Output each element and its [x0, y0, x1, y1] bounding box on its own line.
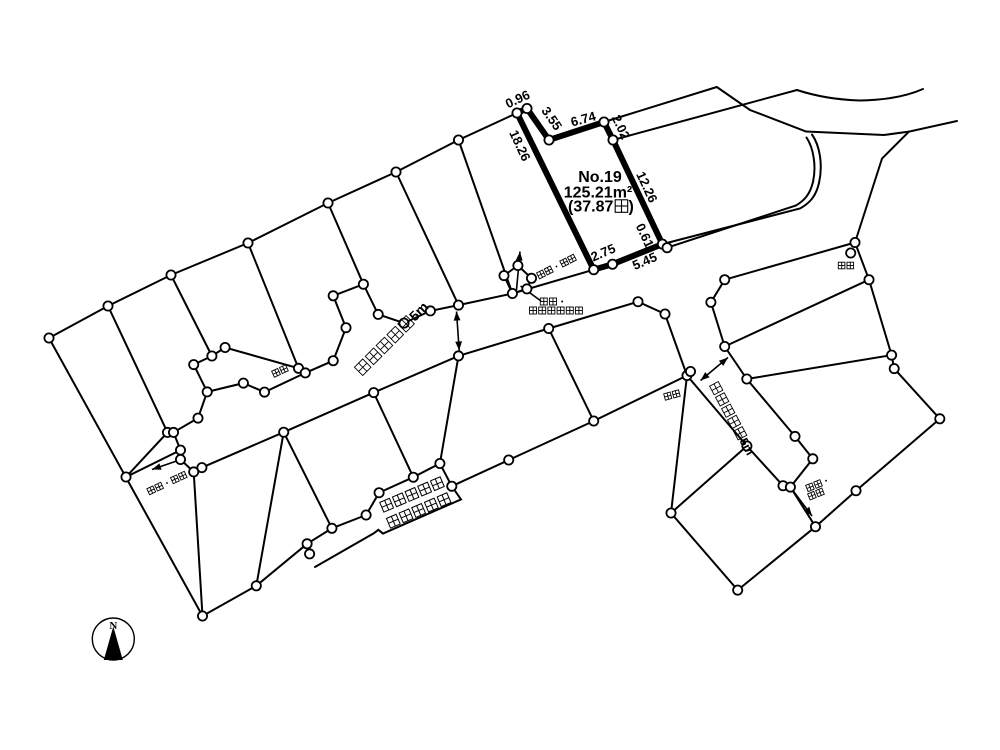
- svg-text:N: N: [109, 620, 117, 632]
- svg-text:No.19: No.19: [578, 169, 622, 186]
- svg-text:(37.87: (37.87: [568, 199, 613, 216]
- svg-text:): ): [629, 199, 634, 216]
